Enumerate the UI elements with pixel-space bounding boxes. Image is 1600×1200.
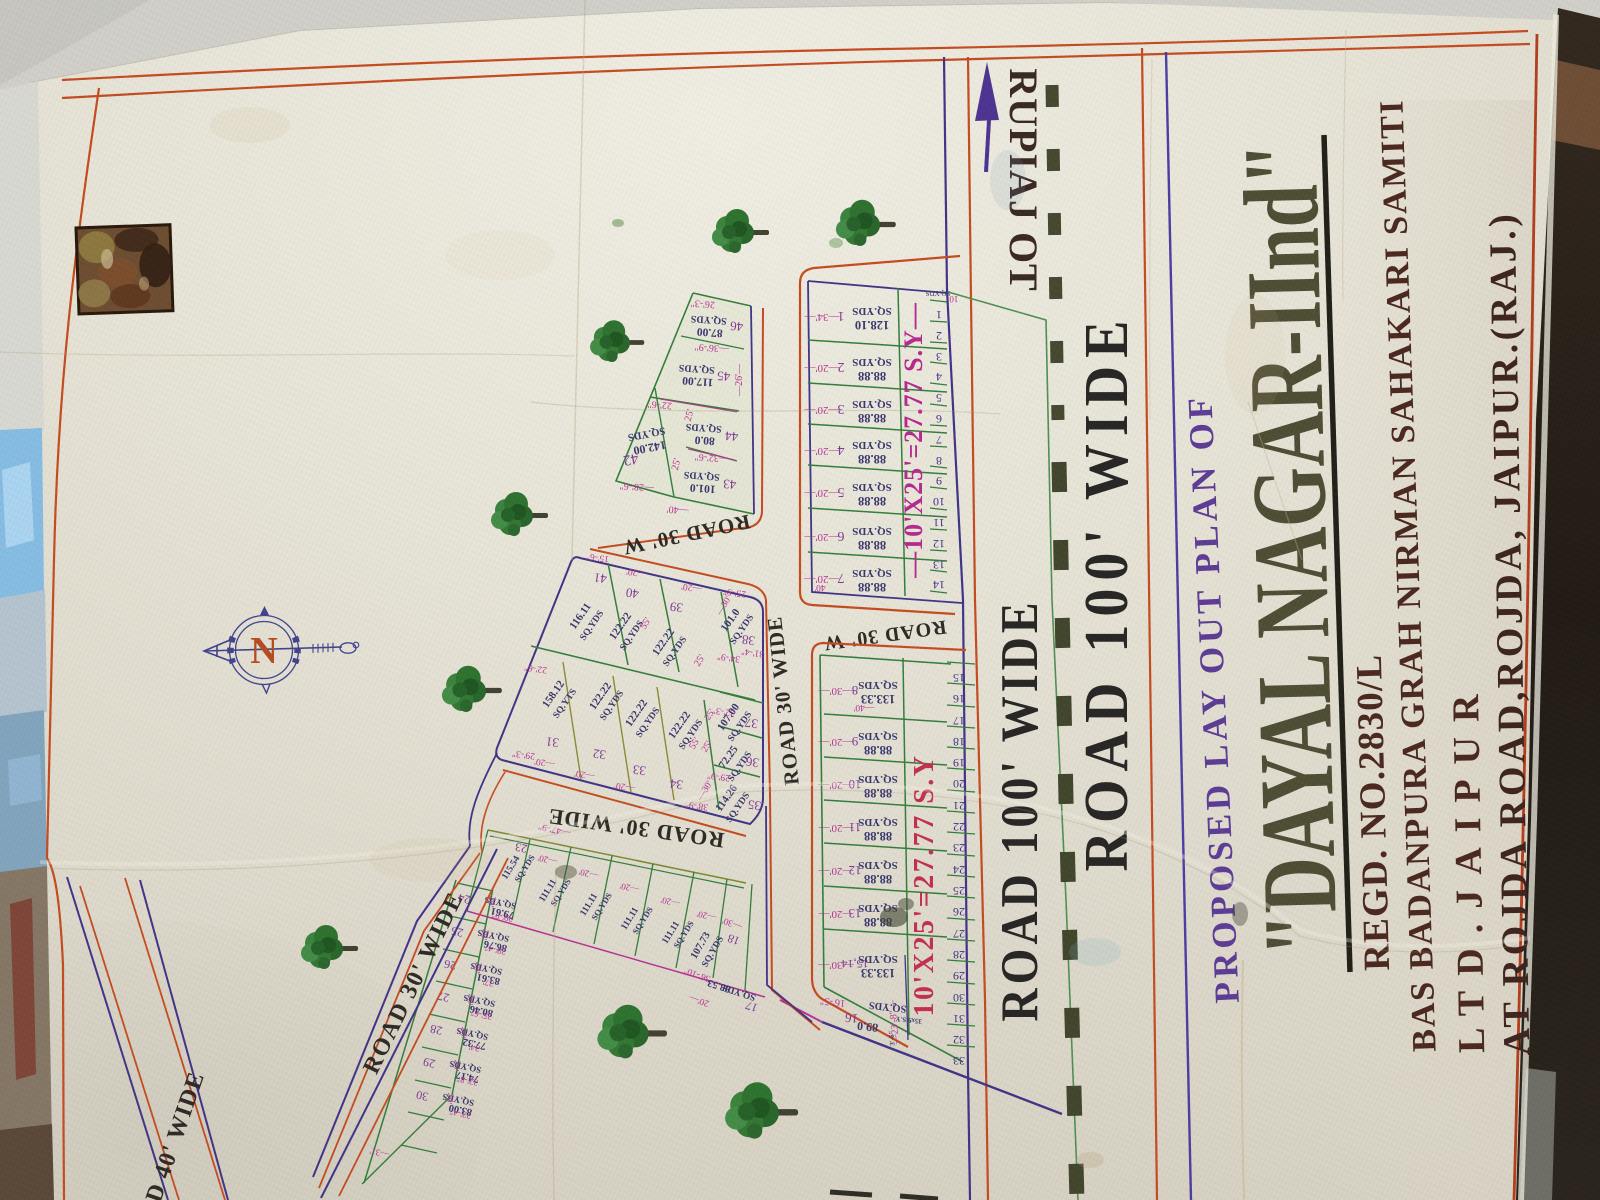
svg-text:10'X25'=27.77 S.Y: 10'X25'=27.77 S.Y — [909, 753, 940, 1016]
svg-text:—20'—: —20'— — [804, 531, 841, 543]
svg-text:6: 6 — [936, 412, 942, 426]
svg-text:24: 24 — [953, 863, 965, 877]
svg-text:ROAD 100' WIDE: ROAD 100' WIDE — [1071, 313, 1141, 872]
svg-text:40: 40 — [625, 585, 640, 602]
svg-text:101.0: 101.0 — [689, 481, 716, 495]
svg-text:—40': —40' — [853, 702, 875, 712]
svg-text:—34'—: —34'— — [804, 311, 841, 323]
svg-text:46: 46 — [729, 319, 744, 335]
svg-text:SQ.YDS: SQ.YDS — [858, 730, 897, 742]
svg-text:128.10: 128.10 — [855, 318, 889, 332]
svg-text:—20'—: —20'— — [804, 362, 841, 374]
svg-text:1: 1 — [936, 308, 942, 322]
svg-text:9: 9 — [852, 734, 859, 749]
svg-text:40': 40' — [814, 582, 826, 592]
svg-text:31: 31 — [545, 734, 560, 751]
svg-text:87.00: 87.00 — [696, 325, 723, 339]
svg-text:21: 21 — [953, 799, 965, 813]
svg-text:4: 4 — [838, 442, 845, 457]
svg-text:22: 22 — [953, 820, 965, 834]
svg-text:SQ.YDS: SQ.YDS — [852, 439, 891, 451]
svg-text:27: 27 — [953, 927, 965, 941]
svg-text:SQ.YDS: SQ.YDS — [858, 816, 897, 828]
svg-text:SQ.YDS: SQ.YDS — [858, 953, 897, 965]
svg-text:3: 3 — [936, 350, 942, 364]
svg-text:89.0: 89.0 — [856, 1019, 878, 1035]
svg-text:88.88: 88.88 — [858, 494, 886, 508]
svg-text:—20'—: —20'— — [804, 445, 841, 457]
svg-text:—10'X25'=27.77 S.Y—: —10'X25'=27.77 S.Y— — [899, 302, 928, 579]
svg-text:88.88: 88.88 — [858, 538, 886, 552]
svg-text:26: 26 — [953, 905, 965, 919]
svg-text:N: N — [250, 630, 277, 672]
svg-text:SQ.YDS: SQ.YDS — [852, 481, 891, 493]
svg-text:88.88: 88.88 — [864, 872, 892, 886]
svg-text:88.88: 88.88 — [858, 452, 886, 466]
svg-text:34: 34 — [668, 776, 683, 793]
svg-text:39: 39 — [669, 599, 684, 616]
svg-text:SQ.YDS: SQ.YDS — [852, 398, 891, 410]
svg-text:20: 20 — [953, 777, 965, 791]
svg-text:13: 13 — [933, 558, 945, 572]
svg-text:26'-3": 26'-3" — [690, 297, 715, 310]
svg-text:15: 15 — [953, 671, 965, 685]
svg-text:41: 41 — [593, 570, 608, 587]
svg-text:1: 1 — [838, 308, 845, 323]
svg-text:SQ.YDS: SQ.YDS — [926, 289, 951, 297]
svg-text:33: 33 — [953, 1054, 965, 1068]
svg-text:16: 16 — [953, 692, 965, 706]
svg-text:3: 3 — [838, 401, 845, 416]
svg-text:133.33: 133.33 — [861, 966, 895, 980]
svg-text:7: 7 — [838, 570, 845, 585]
svg-text:—20'—: —20'— — [818, 736, 855, 748]
svg-text:88.88: 88.88 — [858, 411, 886, 425]
svg-text:—40': —40' — [666, 503, 690, 516]
svg-text:22'-6": 22'-6" — [647, 398, 672, 411]
svg-text:SQ.YDS: SQ.YDS — [858, 679, 897, 691]
svg-text:23: 23 — [953, 841, 965, 855]
svg-text:17: 17 — [953, 714, 965, 728]
svg-text:37: 37 — [743, 715, 758, 732]
svg-text:12: 12 — [933, 537, 945, 551]
svg-text:88.88: 88.88 — [864, 829, 892, 843]
svg-text:—26'—: —26'— — [734, 363, 745, 397]
svg-text:LTD.JAIPUR: LTD.JAIPUR — [1445, 679, 1494, 1053]
svg-text:18: 18 — [953, 735, 965, 749]
svg-text:3'-6": 3'-6" — [887, 1030, 896, 1046]
svg-text:42: 42 — [622, 450, 640, 469]
svg-text:SQ.YDS: SQ.YDS — [852, 525, 891, 537]
svg-text:4: 4 — [936, 370, 942, 384]
svg-text:30: 30 — [953, 991, 965, 1005]
svg-text:6: 6 — [838, 528, 845, 543]
svg-text:19: 19 — [953, 756, 965, 770]
svg-text:11: 11 — [933, 516, 945, 530]
svg-text:32: 32 — [592, 746, 607, 763]
svg-text:SQ.YDS: SQ.YDS — [852, 305, 891, 317]
svg-text:117.00: 117.00 — [682, 374, 714, 388]
svg-text:35: 35 — [747, 797, 762, 814]
svg-text:29: 29 — [953, 969, 965, 983]
svg-text:33: 33 — [632, 762, 647, 779]
svg-text:31: 31 — [953, 1012, 965, 1026]
svg-text:43: 43 — [723, 477, 737, 493]
svg-text:10': 10' — [947, 294, 958, 304]
svg-text:28: 28 — [953, 948, 965, 962]
svg-text:36: 36 — [744, 754, 759, 771]
svg-text:88.88: 88.88 — [858, 369, 886, 383]
svg-text:—20'—: —20'— — [804, 487, 841, 499]
svg-text:8: 8 — [852, 683, 859, 698]
svg-text:88.88: 88.88 — [858, 580, 886, 594]
svg-text:SQ.YDS: SQ.YDS — [858, 859, 897, 871]
svg-text:SQ.YDS: SQ.YDS — [852, 356, 891, 368]
svg-text:9: 9 — [936, 474, 942, 488]
svg-text:2: 2 — [936, 329, 942, 343]
svg-text:"DAYAL NAGAR-IInd": "DAYAL NAGAR-IInd" — [1221, 141, 1360, 957]
svg-text:44: 44 — [724, 429, 739, 445]
svg-text:32: 32 — [953, 1033, 965, 1047]
svg-text:5: 5 — [838, 484, 845, 499]
svg-text:45: 45 — [717, 369, 731, 385]
svg-text:ROAD 100' WIDE: ROAD 100' WIDE — [990, 598, 1049, 1021]
svg-text:SQ.YDS: SQ.YDS — [852, 567, 891, 579]
svg-text:88.88: 88.88 — [864, 743, 892, 757]
svg-text:7: 7 — [936, 433, 942, 447]
svg-text:5: 5 — [936, 391, 942, 405]
svg-text:—30'—: —30'— — [818, 685, 855, 697]
svg-text:2: 2 — [838, 359, 845, 374]
svg-text:25: 25 — [953, 884, 965, 898]
svg-text:REGD. NO.2830/L: REGD. NO.2830/L — [1349, 653, 1398, 971]
svg-text:10: 10 — [933, 495, 945, 509]
svg-text:14: 14 — [933, 578, 945, 592]
svg-text:80.0: 80.0 — [694, 433, 715, 446]
svg-text:8: 8 — [936, 454, 942, 468]
svg-text:16: 16 — [844, 1010, 859, 1026]
